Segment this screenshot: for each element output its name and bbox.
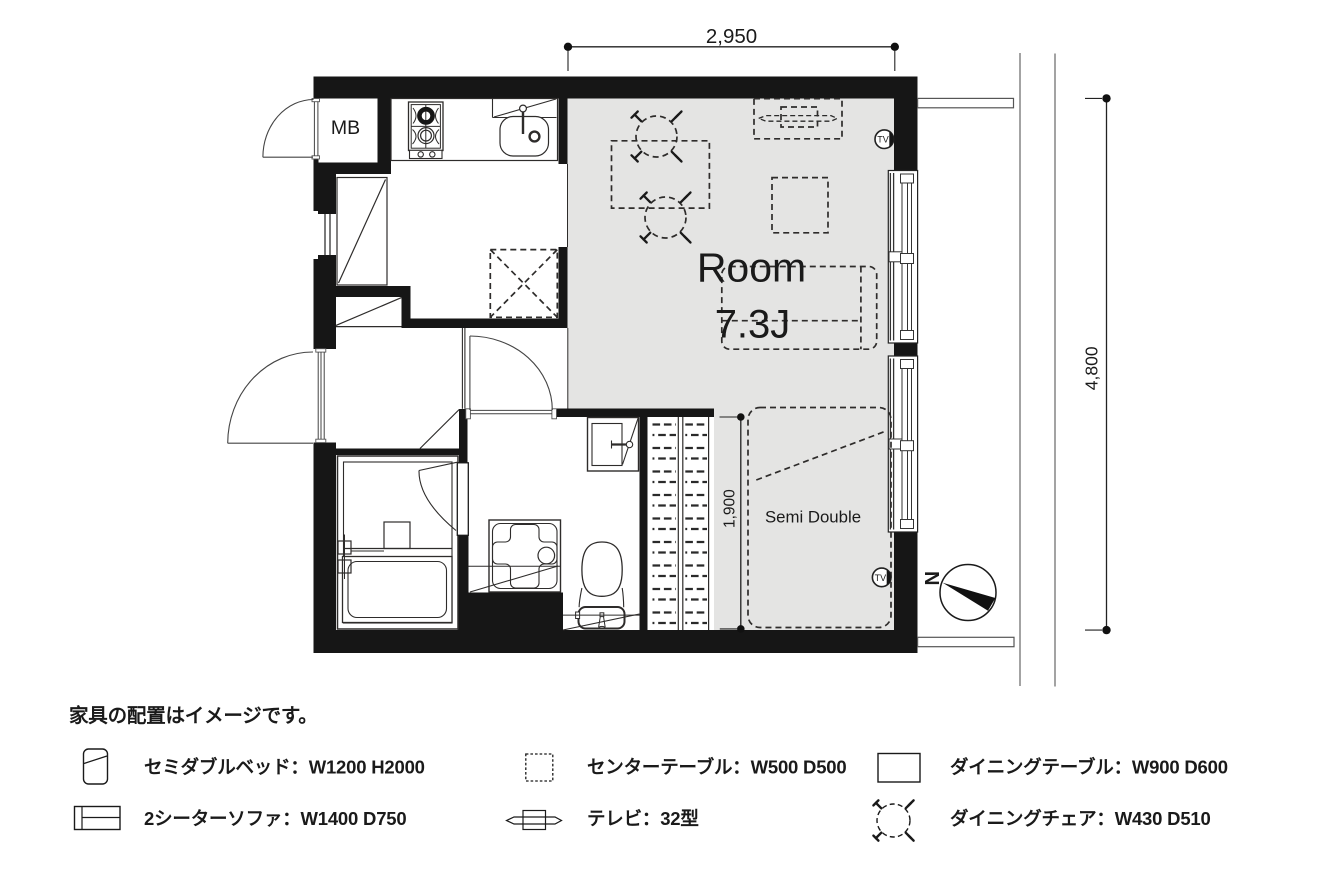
svg-text:Semi Double: Semi Double	[765, 508, 861, 527]
svg-text:4,800: 4,800	[1082, 346, 1102, 390]
svg-text:N: N	[922, 571, 944, 585]
svg-text:セミダブルベッド：W1200 H2000: セミダブルベッド：W1200 H2000	[144, 757, 425, 778]
svg-text:1,900: 1,900	[722, 489, 739, 528]
svg-text:TV: TV	[877, 135, 889, 145]
svg-text:MB: MB	[331, 117, 360, 139]
svg-text:2,950: 2,950	[706, 25, 757, 48]
svg-text:ダイニングチェア：W430 D510: ダイニングチェア：W430 D510	[950, 808, 1211, 829]
svg-text:ダイニングテーブル：W900 D600: ダイニングテーブル：W900 D600	[950, 757, 1228, 778]
svg-text:センターテーブル：W500 D500: センターテーブル：W500 D500	[587, 757, 847, 778]
svg-text:Room: Room	[697, 245, 806, 291]
svg-text:TV: TV	[875, 573, 887, 583]
svg-text:7.3J: 7.3J	[715, 303, 791, 347]
svg-text:テレビ：32型: テレビ：32型	[587, 808, 699, 829]
svg-text:家具の配置はイメージです。: 家具の配置はイメージです。	[69, 704, 318, 727]
svg-text:2シーターソファ：W1400 D750: 2シーターソファ：W1400 D750	[144, 808, 406, 829]
